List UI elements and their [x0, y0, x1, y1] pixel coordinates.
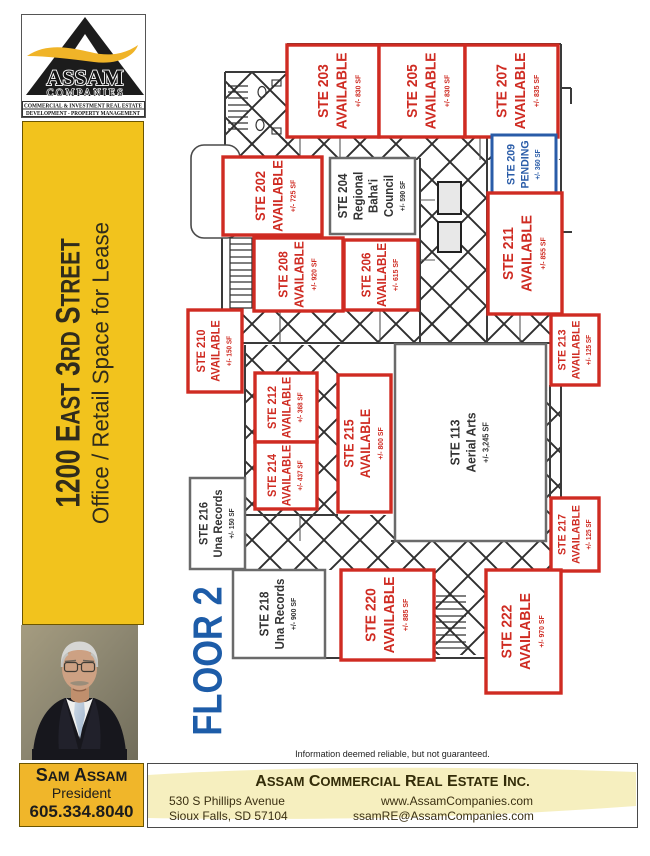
svg-text:ASSAM: ASSAM	[46, 65, 123, 90]
svg-text:DEVELOPMENT - PROPERTY MANAGEM: DEVELOPMENT - PROPERTY MANAGEMENT	[26, 110, 141, 117]
svg-text:COMPANIES: COMPANIES	[47, 88, 125, 99]
